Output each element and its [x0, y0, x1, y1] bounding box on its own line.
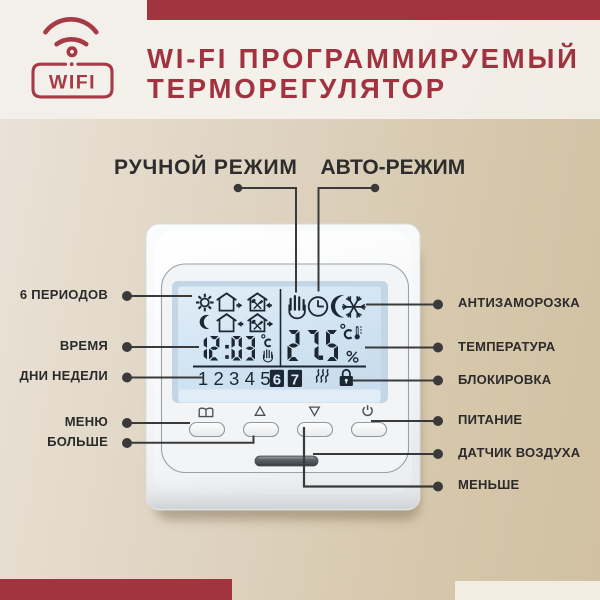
svg-text:4: 4 — [245, 368, 255, 389]
svg-text:5: 5 — [260, 368, 270, 389]
svg-text:2: 2 — [213, 368, 223, 389]
svg-text:6: 6 — [273, 372, 281, 389]
svg-text:7: 7 — [291, 372, 299, 389]
svg-text:3: 3 — [229, 368, 239, 389]
